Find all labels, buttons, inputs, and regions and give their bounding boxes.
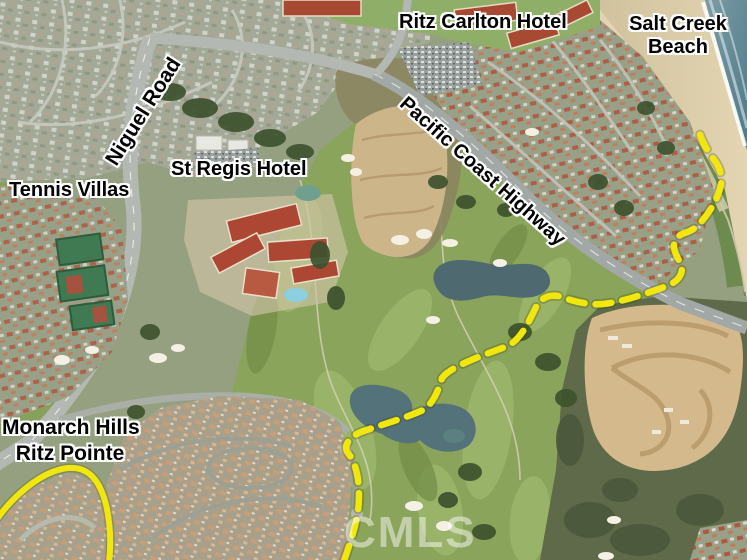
label-monarch-line1: Monarch Hills [2, 415, 138, 441]
aerial-imagery [0, 0, 747, 560]
pond-upper [433, 260, 550, 301]
pond-small [443, 429, 465, 443]
label-monarch-hills-ritz-pointe: Monarch Hills Ritz Pointe [2, 415, 138, 467]
label-tennis-villas: Tennis Villas [9, 180, 129, 202]
label-st-regis-hotel: St Regis Hotel [171, 159, 307, 181]
label-salt-creek-beach: Salt Creek Beach [618, 13, 738, 59]
label-ritz-carlton-hotel: Ritz Carlton Hotel [399, 12, 567, 34]
label-monarch-line2: Ritz Pointe [2, 441, 138, 467]
aerial-map: Ritz Carlton Hotel Salt Creek Beach Nigu… [0, 0, 747, 560]
watermark: CMLS [344, 508, 477, 558]
label-salt-creek-line2: Beach [618, 36, 738, 59]
label-salt-creek-line1: Salt Creek [618, 13, 738, 36]
